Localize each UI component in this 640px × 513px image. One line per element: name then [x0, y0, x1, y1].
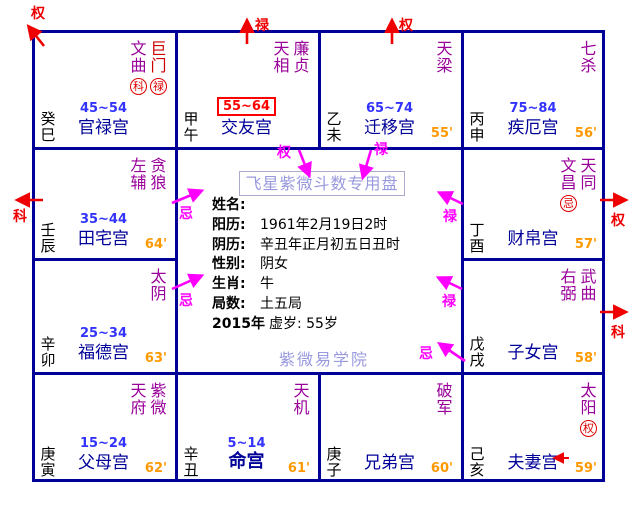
palace-cell-fumu: 天府 紫微 庚寅 15~24 父母宫 62' [32, 372, 175, 482]
chart-title: 飞星紫微斗数专用盘 [239, 171, 405, 196]
palace-name: 交友宫 [175, 113, 318, 138]
flow-year-mark: 61' [288, 461, 310, 476]
flow-year-mark: 58' [575, 351, 597, 366]
transform-mark-lu: 禄 [150, 78, 167, 95]
star-group: 左辅 贪狼 [130, 157, 167, 191]
star-group: 天府 紫微 [130, 382, 167, 416]
magenta-arrow-label-ji: 忌 [179, 290, 193, 310]
red-arrow-label-quan: 权 [31, 3, 45, 23]
magenta-arrow-label-lu: 禄 [443, 206, 457, 226]
star-wuqu: 武曲 [580, 268, 597, 302]
star-tianxiang: 天相 [273, 40, 290, 74]
flow-year-mark: 63' [145, 351, 167, 366]
star-jumen: 巨门 [150, 40, 167, 74]
palace-cell-qianyi: 天梁 乙未 65~74 迁移宫 55' [318, 30, 461, 147]
transform-mark-ke: 科 [130, 78, 147, 95]
palace-cell-jie: 七杀 丙申 75~84 疾厄宫 56' [461, 30, 605, 147]
field-zodiac: 生肖:牛 [212, 275, 400, 295]
field-bureau: 局数:土五局 [212, 295, 400, 315]
red-arrow-label-ke: 科 [13, 206, 27, 226]
palace-cell-ming: 天机 辛丑 5~14 命宫 61' [175, 372, 318, 482]
palace-cell-guanlu: 文曲 科 巨门 禄 癸巳 45~54 官禄宫 [32, 30, 175, 147]
watermark-text: 紫微易学院 [279, 346, 369, 370]
star-group: 太阴 [150, 268, 167, 302]
palace-name: 官禄宫 [32, 113, 175, 138]
flow-year-mark: 56' [575, 126, 597, 141]
star-tianliang: 天梁 [436, 40, 453, 74]
magenta-arrow-label-quan: 权 [277, 142, 291, 162]
magenta-arrow-label-ji: 忌 [419, 343, 433, 363]
palace-cell-tianzhai: 左辅 贪狼 壬辰 35~44 田宅宫 64' [32, 147, 175, 258]
red-arrow-label-lu: 禄 [255, 15, 269, 35]
star-group: 破军 [436, 382, 453, 416]
star-taiyang: 太阳 [580, 382, 597, 416]
star-tanlang: 贪狼 [150, 157, 167, 191]
field-gender: 性别:阴女 [212, 255, 400, 275]
star-group: 右弼 武曲 [560, 268, 597, 302]
star-group: 文昌 忌 天同 [560, 157, 597, 212]
star-group: 天机 [293, 382, 310, 416]
star-qisha: 七杀 [580, 40, 597, 74]
star-wenqu: 文曲 [130, 40, 147, 74]
star-lianzhen: 廉贞 [293, 40, 310, 74]
magenta-arrow-label-lu: 禄 [442, 291, 456, 311]
star-wenchang: 文昌 [560, 157, 577, 191]
flow-year-mark: 60' [431, 461, 453, 476]
red-arrow-label-ke: 科 [611, 322, 625, 342]
star-group: 天相 廉贞 [273, 40, 310, 74]
magenta-arrow-label-lu: 禄 [374, 139, 388, 159]
red-arrow-label-quan: 权 [399, 15, 413, 35]
star-taiyin: 太阴 [150, 268, 167, 302]
palace-cell-caibo: 文昌 忌 天同 丁酉 财帛宫 57' [461, 147, 605, 258]
palace-cell-fude: 太阴 辛卯 25~34 福德宫 63' [32, 258, 175, 372]
field-year-age: 2015年虚岁: 55岁 [212, 315, 400, 335]
birth-info-panel: 姓名: 阳历:1961年2月19日2时 阴历:辛丑年正月初五日丑时 性别:阴女 … [212, 196, 400, 335]
star-group: 太阳 权 [580, 382, 597, 437]
transform-mark-quan: 权 [580, 420, 597, 437]
star-tiantong: 天同 [580, 157, 597, 191]
red-arrow-label-quan: 权 [611, 210, 625, 230]
magenta-arrow-label-ji: 忌 [179, 203, 193, 223]
star-tianfu: 天府 [130, 382, 147, 416]
palace-cell-jiaoyou: 天相 廉贞 甲午 55~64 交友宫 [175, 30, 318, 147]
star-youbi: 右弼 [560, 268, 577, 302]
field-lunar-date: 阴历:辛丑年正月初五日丑时 [212, 236, 400, 256]
star-ziwei: 紫微 [150, 382, 167, 416]
palace-cell-fuqi: 太阳 权 己亥 夫妻宫 59' [461, 372, 605, 482]
star-pojun: 破军 [436, 382, 453, 416]
flow-year-mark: 55' [431, 126, 453, 141]
star-zuofu: 左辅 [130, 157, 147, 191]
star-group: 七杀 [580, 40, 597, 74]
star-group: 天梁 [436, 40, 453, 74]
flow-year-mark: 64' [145, 237, 167, 252]
field-name: 姓名: [212, 196, 400, 216]
palace-cell-zinv: 右弼 武曲 戊戌 子女宫 58' [461, 258, 605, 372]
flow-year-mark: 62' [145, 461, 167, 476]
field-solar-date: 阳历:1961年2月19日2时 [212, 216, 400, 236]
star-tianji: 天机 [293, 382, 310, 416]
flow-year-mark: 57' [575, 237, 597, 252]
star-group: 文曲 科 巨门 禄 [130, 40, 167, 95]
transform-mark-ji: 忌 [560, 195, 577, 212]
flow-year-mark: 59' [575, 461, 597, 476]
palace-cell-xiongdi: 破军 庚子 兄弟宫 60' [318, 372, 461, 482]
ziwei-chart: 文曲 科 巨门 禄 癸巳 45~54 官禄宫 天相 廉贞 甲午 55~64 交友… [0, 0, 640, 513]
